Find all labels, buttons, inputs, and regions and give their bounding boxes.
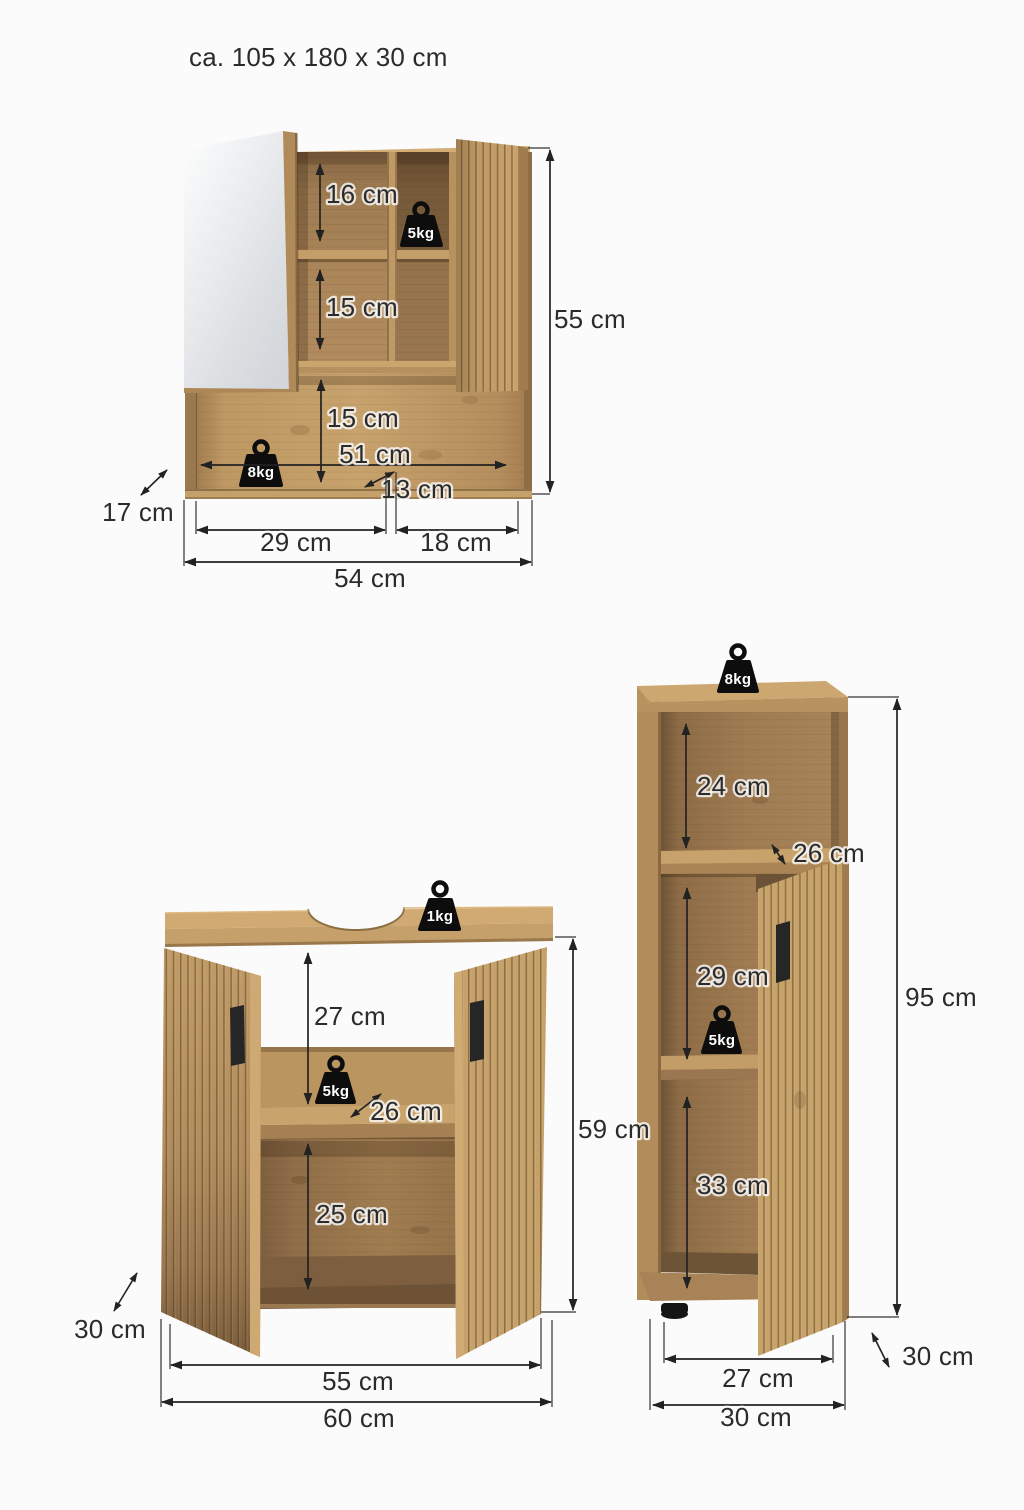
svg-text:27 cm: 27 cm <box>314 1001 386 1031</box>
svg-text:26 cm: 26 cm <box>793 838 865 868</box>
svg-text:51 cm: 51 cm <box>339 439 411 469</box>
svg-text:18 cm: 18 cm <box>420 527 492 557</box>
svg-text:25 cm: 25 cm <box>316 1199 388 1229</box>
svg-text:33 cm: 33 cm <box>697 1170 769 1200</box>
svg-text:ca. 105 x 180 x 30 cm: ca. 105 x 180 x 30 cm <box>189 42 448 72</box>
svg-text:27 cm: 27 cm <box>722 1363 794 1393</box>
svg-text:59 cm: 59 cm <box>578 1114 650 1144</box>
svg-text:16 cm: 16 cm <box>326 179 398 209</box>
svg-text:5kg: 5kg <box>323 1083 350 1100</box>
svg-text:29 cm: 29 cm <box>697 961 769 991</box>
svg-text:30 cm: 30 cm <box>902 1341 974 1371</box>
svg-text:30 cm: 30 cm <box>74 1314 146 1344</box>
svg-text:15 cm: 15 cm <box>327 403 399 433</box>
svg-text:5kg: 5kg <box>709 1032 736 1049</box>
svg-text:15 cm: 15 cm <box>326 292 398 322</box>
svg-text:8kg: 8kg <box>248 464 275 481</box>
svg-text:24 cm: 24 cm <box>697 771 769 801</box>
svg-text:55 cm: 55 cm <box>554 304 626 334</box>
svg-text:26 cm: 26 cm <box>370 1096 442 1126</box>
svg-text:54 cm: 54 cm <box>334 563 406 593</box>
svg-text:8kg: 8kg <box>725 671 752 688</box>
svg-text:55 cm: 55 cm <box>322 1366 394 1396</box>
svg-text:13 cm: 13 cm <box>381 474 453 504</box>
svg-text:60 cm: 60 cm <box>323 1403 395 1433</box>
svg-text:95 cm: 95 cm <box>905 982 977 1012</box>
svg-text:5kg: 5kg <box>408 225 435 242</box>
svg-text:17 cm: 17 cm <box>102 497 174 527</box>
svg-text:30 cm: 30 cm <box>720 1402 792 1432</box>
svg-text:29 cm: 29 cm <box>260 527 332 557</box>
svg-text:1kg: 1kg <box>427 908 454 925</box>
